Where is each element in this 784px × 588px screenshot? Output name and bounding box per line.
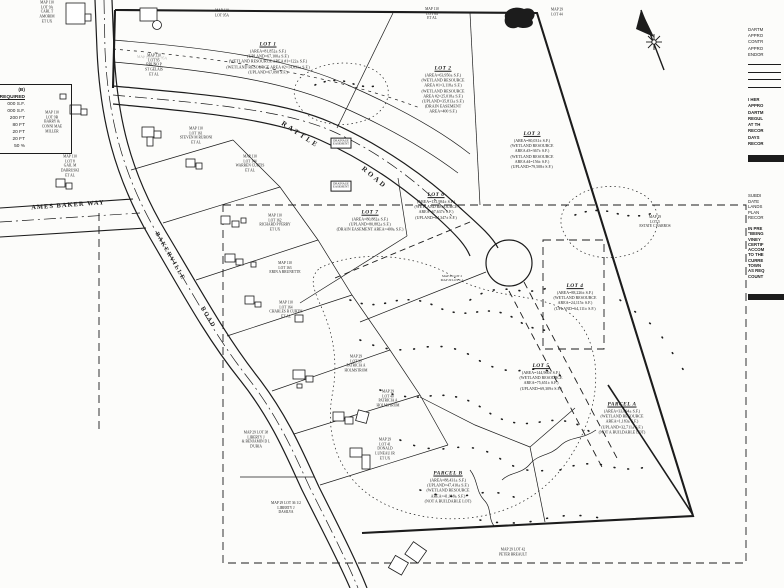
abutter-luneau: MAP 29LOT 41DONALDLUNEAU JRET UX [375,437,394,460]
lot-6-label-line: AREA=67,637± S.F.) [415,210,458,215]
plat-linework [0,0,784,588]
rattle-road-edges [113,86,532,286]
zoning-table-row: 50 % [0,143,25,150]
drainage-easement-1: DRAINAGEEASEMENT [331,138,352,149]
abutter-duria-line: D'URIA [242,445,270,450]
lot-1-label-title: LOT 1 [226,42,309,49]
abutter-dabruski-line: DABRUSKI [61,168,79,173]
abutter-lot44-line: MAP 29 [551,7,563,12]
parcel-a-label-title: PARCEL A [599,402,646,409]
lot-2-label-title: LOT 2 [422,66,465,73]
lot-7-label-line: (DRAIN EASEMENT AREA=400± S.F.) [337,227,404,232]
abutter-lot84: MAP 110LOT 84ET AL [425,7,439,21]
wetland-speckles [315,80,686,523]
abutter-stgelais-line: ST GELAIS [145,67,163,72]
certification-block-line: RECOR [748,141,784,147]
abutter-lot95a-top-line: MAP 110 [215,8,229,13]
zoning-table-row: 200 FT [0,115,25,122]
abutter-lot44: MAP 29LOT 44 [551,7,563,16]
abutter-holmstrom-39-line: HOLMSTROM [345,369,368,374]
abutter-holmstrom-39: MAP 29LOT 39PATRICIA AHOLMSTROM [345,355,368,374]
lot-1-label-line: (WETLAND RESOURCE AREA #1=122± S.F.) [226,59,309,64]
signature-line [748,79,781,80]
zoning-table-subheader: REQUIRED [0,94,25,101]
ames-baker-way-centerline [0,213,140,222]
lot-5-label-title: LOT 5 [520,363,563,370]
signature-line [748,72,781,73]
zoning-table-row: 20 FT [0,129,25,136]
zoning-table-row: 000 S.F. [0,101,25,108]
lot-2-label-line: AREA #1=3,118± S.F.) [422,83,465,88]
abutter-luneau-line: LUNEAU JR [375,451,394,456]
zoning-table-row: 000 S.F. [0,108,25,115]
parcel-b-label-line: AREA=41,018± S.F.) [425,493,472,498]
abutter-lot95a-top-line: LOT 95A [215,13,229,18]
abutter-stgelais-line: ET AL [145,72,163,77]
plat-sheet: (B) REQUIRED 000 S.F.000 S.F.200 FT80 FT… [0,0,784,588]
lot-1-label: LOT 1(AREA=81,852± S.F.)(UPLAND=67,100± … [226,42,309,75]
abutter-ccurtis: MAP 110LOT 164CHARLES R CURTISET AL [269,301,302,320]
abutter-lot84-line: ET AL [425,16,439,21]
abutter-dabruski-line: MAP 110 [61,154,79,159]
lot-7-label: LOT 7(AREA=80,882± S.F.)(UPLAND=80,882± … [337,210,404,233]
abutter-perry: MAP 110LOT 162RICHARD P PERRYET UX [259,214,290,233]
abutter-ccurtis-line: ET AL [269,315,302,320]
lot-3-label-line: (WETLAND RESOURCE [511,154,554,159]
margin-title-bar [748,155,784,162]
lot-2-label-line: AREA=400 S.F.) [422,109,465,114]
abutter-lot95a-top: MAP 110LOT 95A [215,8,229,17]
abutter-amorim: MAP 110LOT 9ACARL TAMORIMET UX [39,0,54,23]
abutter-barros-line: ESTATE C BARROS [639,224,670,229]
recording-block-line: RECOR [748,215,784,221]
lot-4-label-title: LOT 4 [554,283,597,290]
parcel-a-label-line: (NOT A BUILDABLE LOT) [599,429,646,434]
lot-1-label-line: (WETLAND RESOURCE AREA #2=14,631± S.F.) [226,64,309,69]
abutter-wcurtis: MAP 110LOT 144WARREN CURTISET AL [236,155,265,174]
lot-2-label-line: (WETLAND RESOURCE [422,88,465,93]
abutter-duria-line: MAP 29 LOT 38 [242,431,270,436]
parcel-a-label-line: (UPLAND=32,711± S.F.) [599,424,646,429]
abutter-ruboni: MAP 110LOT 161STEVEN M RUBONIET AL [180,127,213,146]
old-lot-line-note: MAP 29 LOT 2MAP 29 LOT 1-1 [441,274,464,282]
lot-3-label-line: (UPLAND=79,508± S.F.) [511,164,554,169]
abutter-amorim-line: AMORIM [39,14,54,19]
abutter-dabruski-line: ET AL [61,173,79,178]
abutter-breault: MAP 29 LOT 42PETER BREAULT [499,547,527,556]
lot-5-label: LOT 5(AREA=144,960± S.F.)(WETLAND RESOUR… [520,363,563,391]
lot-3-label: LOT 3(AREA=80,031± S.F.)(WETLAND RESOURC… [511,131,554,169]
margin-title-bar [748,294,784,300]
lot-6-label: LOT 6(AREA=131,984± S.F.)(WETLAND RESOUR… [415,192,458,220]
dashed-boundary-lines [99,205,746,563]
lot-3-label-line: AREA #3=367± S.F.) [511,148,554,153]
recording-block: SUBDIDATELANDSPLANRECOR [748,193,784,221]
signature-line [748,64,781,65]
drainage-easement-2: DRAINAGEEASEMENT [331,181,352,192]
abutter-wcurtis-line: ET AL [236,169,265,174]
zoning-table-row: 20 FT [0,136,25,143]
abutter-amorim-line: ET UX [39,19,54,24]
lot-6-label-title: LOT 6 [415,192,458,199]
lot-7-label-title: LOT 7 [337,210,404,217]
notes-block: IN PRE"BEINGVINEYCERTIFACCOMTO THECURRET… [748,226,784,279]
abutter-ruboni-line: ET AL [180,141,213,146]
notes-block-line: COUNT [748,274,784,279]
zoning-table-header: (B) [0,87,25,94]
approval-block-line: ENDOR [748,52,784,58]
abutter-miller: MAP 110LOT 9BBARRY &CONNI MAEMILLER [42,110,62,133]
tree-symbol [505,8,535,29]
zoning-table-row: 80 FT [0,122,25,129]
lot-5-label-line: (UPLAND=69,309± S.F.) [520,386,563,391]
abutter-lot44-line: LOT 44 [551,12,563,17]
lot-2-label: LOT 2(AREA=63,950± S.F.)(WETLAND RESOURC… [422,66,465,115]
abutter-perry-line: ET UX [259,228,290,233]
abutter-holmstrom-40-line: HOLMSTROM [377,404,400,409]
lot-3-label-title: LOT 3 [511,131,554,138]
parcel-a-label: PARCEL A(AREA=33,894± S.F.)(WETLAND RESO… [599,402,646,435]
lot-4-label: LOT 4(AREA=88,226± S.F.)(WETLAND RESOURC… [554,283,597,311]
abutter-amorim-line: MAP 110 [39,0,54,5]
lot-lines [113,13,575,522]
abutter-brunette-line: ERIN A BRUNETTE [269,270,300,275]
abutter-dasilva-line: MAP 29 LOT 36 1/2 [271,501,301,506]
drainage-easement-1-line: EASEMENT [333,143,349,147]
drainage-easement-2-line: EASEMENT [333,186,349,190]
abutter-luneau-line: ET UX [375,456,394,461]
lot-4-label-line: (UPLAND=64,111± S.F.) [554,306,597,311]
north-arrow-icon [636,10,664,70]
abutter-breault-line: MAP 29 LOT 42 [499,547,527,552]
abutter-barros: MAP 29LOT 5ESTATE C BARROS [639,215,670,229]
abutter-dasilva-line: DASILVA [271,510,301,515]
old-lot-line-note-line: MAP 29 LOT 1-1 [441,278,464,282]
abutter-brunette: MAP 110LOT 163ERIN A BRUNETTE [269,261,300,275]
signature-line [748,87,781,88]
subdivision-boundary [113,10,693,533]
parcel-b-label: PARCEL B(AREA=88,431± S.F.)(UPLAND=47,41… [425,471,472,504]
certification-block: I HERAPPRODARTMREGULAT THRECORDAYSRECOR [748,97,784,147]
lot-6-label-line: (UPLAND=64,347± S.F.) [415,215,458,220]
abutter-lot84-line: MAP 110 [425,7,439,12]
abutter-holmstrom-40: MAP 29LOT 40PATRICIA AHOLMSTROM [377,390,400,409]
abutter-dabruski: MAP 110LOT 8GAIL MDABRUSKIET AL [61,154,79,177]
lot-4-label-line: AREA=24,115± S.F.) [554,301,597,306]
lot-5-label-line: AREA=75,651± S.F.) [520,381,563,386]
building-footprints [56,3,427,575]
parcel-b-label-line: (WETLAND RESOURCE [425,488,472,493]
approval-block: DARTMAPPROCONTRAPPROENDOR [748,27,784,58]
abutter-dasilva: MAP 29 LOT 36 1/2LIBERTY JDASILVA [271,501,301,515]
abutter-miller-line: CONNI MAE [42,124,62,129]
abutter-miller-line: MILLER [42,129,62,134]
abutter-breault-line: PETER BREAULT [499,552,527,557]
lot-1-label-line: (UPLAND=67,098 S.F.) [226,69,309,74]
cul-de-sac [486,240,532,286]
parcel-a-label-line: AREA=1,183± S.F.) [599,419,646,424]
abutter-duria: MAP 29 LOT 38LIBERTY J& BENJAMIN D LD'UR… [242,431,270,450]
parcel-b-label-title: PARCEL B [425,471,472,478]
parcel-b-label-line: (NOT A BUILDABLE LOT) [425,498,472,503]
